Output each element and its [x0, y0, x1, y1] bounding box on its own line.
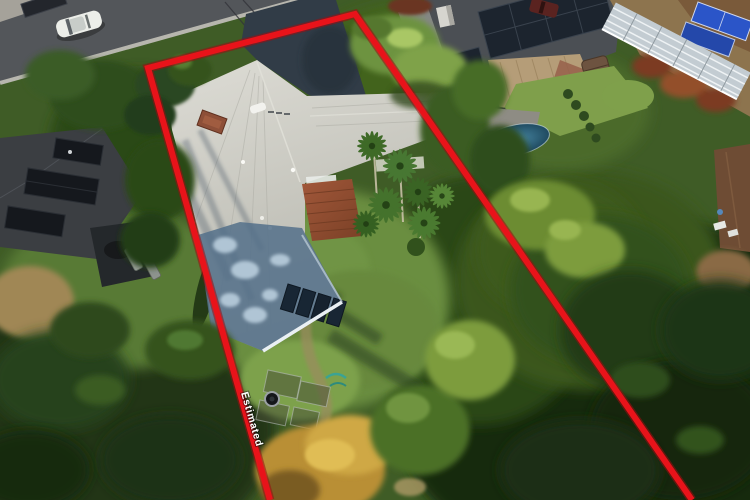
photo-canvas: Estimated	[0, 0, 750, 500]
round-planter	[265, 392, 279, 406]
shrub-ball	[407, 238, 425, 256]
wood-deck	[302, 175, 362, 241]
pergola-lawn	[602, 80, 654, 112]
aerial-property-photo: Estimated	[0, 0, 750, 500]
